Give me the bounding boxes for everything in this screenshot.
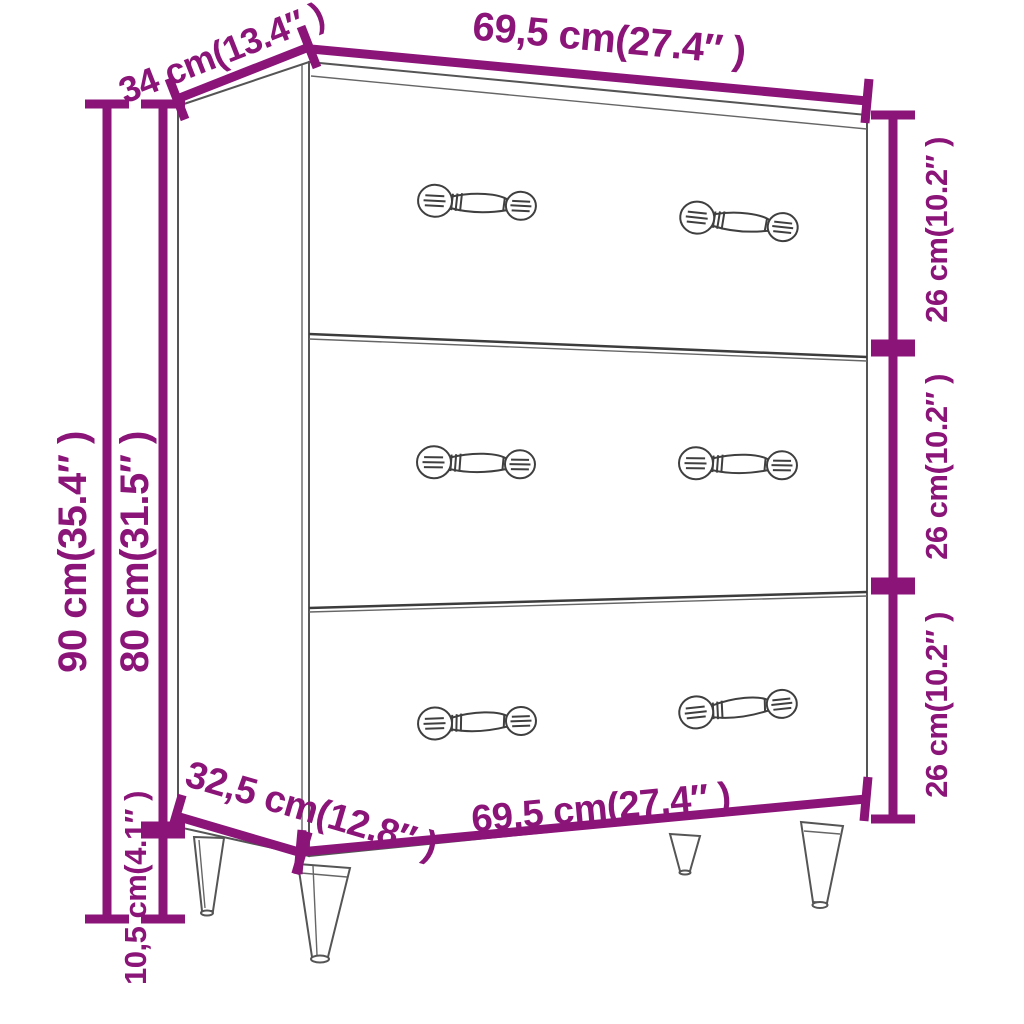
sideboard-dimension-svg: 34 cm(13.4″ ) 69,5 cm(27.4″ ) 26 cm(10.2… — [0, 0, 1024, 1024]
label-drawer2-height: 26 cm(10.2″ ) — [919, 374, 954, 560]
label-drawer1-height: 26 cm(10.2″ ) — [919, 137, 954, 323]
dim-line-drawer1-height — [871, 115, 915, 344]
leg-back-right — [670, 834, 700, 871]
label-top-width: 69,5 cm(27.4″ ) — [471, 4, 748, 73]
leg-front-left — [298, 864, 350, 957]
label-total-height: 90 cm(35.4″ ) — [51, 431, 95, 673]
side-panel — [178, 62, 309, 856]
label-body-height: 80 cm(31.5″ ) — [113, 431, 157, 673]
dim-line-drawer3-height — [871, 590, 915, 819]
label-drawer3-height: 26 cm(10.2″ ) — [919, 612, 954, 798]
dim-line-drawer2-height — [871, 352, 915, 582]
label-leg-height: 10,5 cm(4.1″ ) — [118, 791, 153, 985]
leg-back-left — [194, 837, 224, 911]
dimension-diagram: 34 cm(13.4″ ) 69,5 cm(27.4″ ) 26 cm(10.2… — [0, 0, 1024, 1024]
